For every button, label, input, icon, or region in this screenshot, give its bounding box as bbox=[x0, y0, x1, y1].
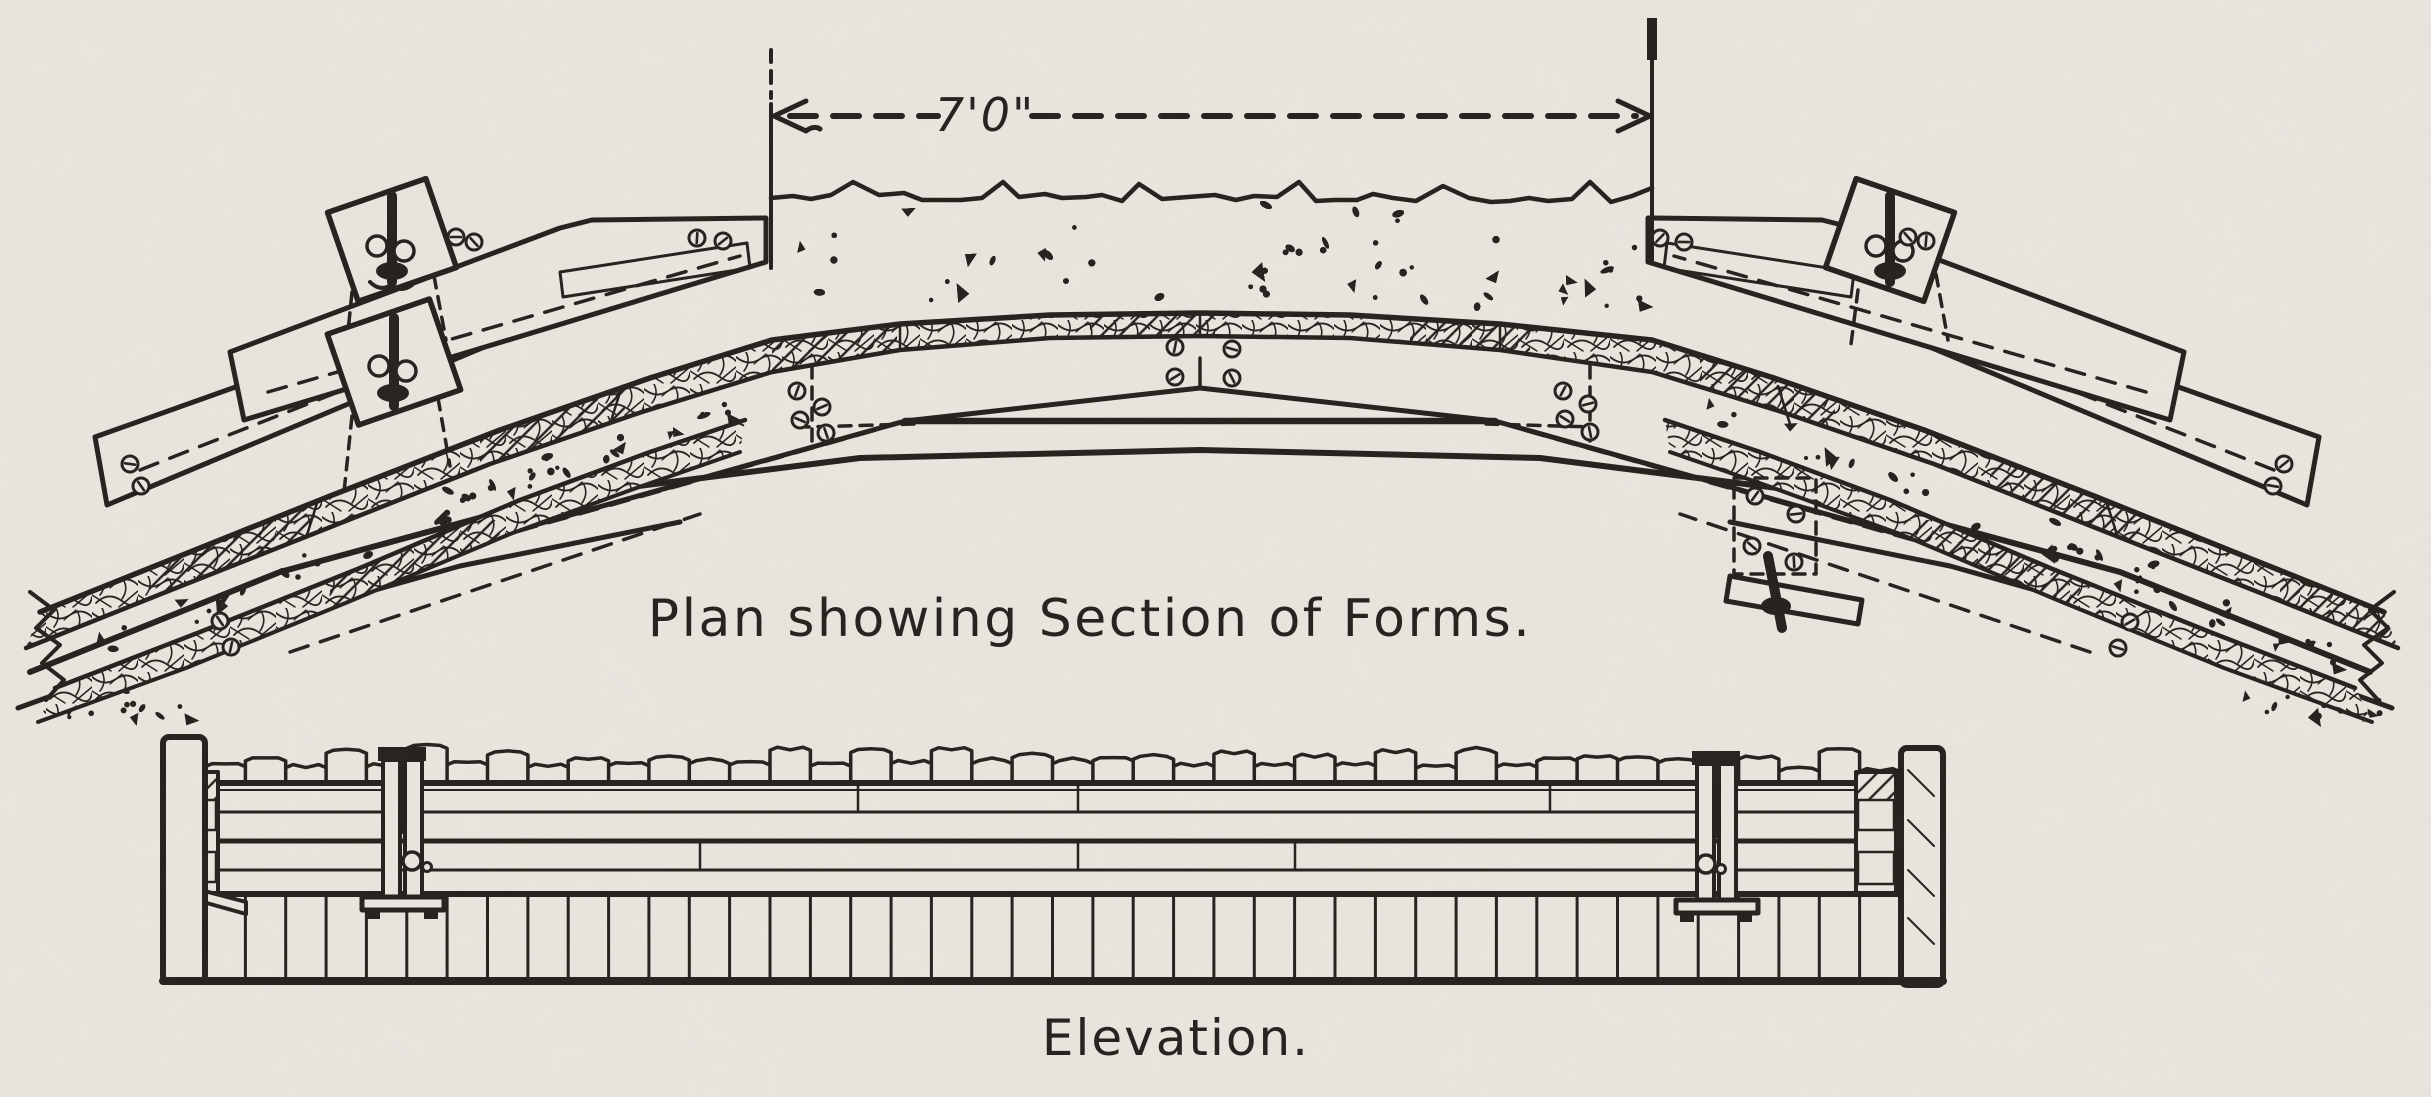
drawing-sheet: 7'0" Plan showing Section of Forms. bbox=[0, 0, 2431, 1097]
technical-drawing: 7'0" Plan showing Section of Forms. bbox=[0, 0, 2431, 1097]
paper-blotches bbox=[0, 0, 2431, 1097]
